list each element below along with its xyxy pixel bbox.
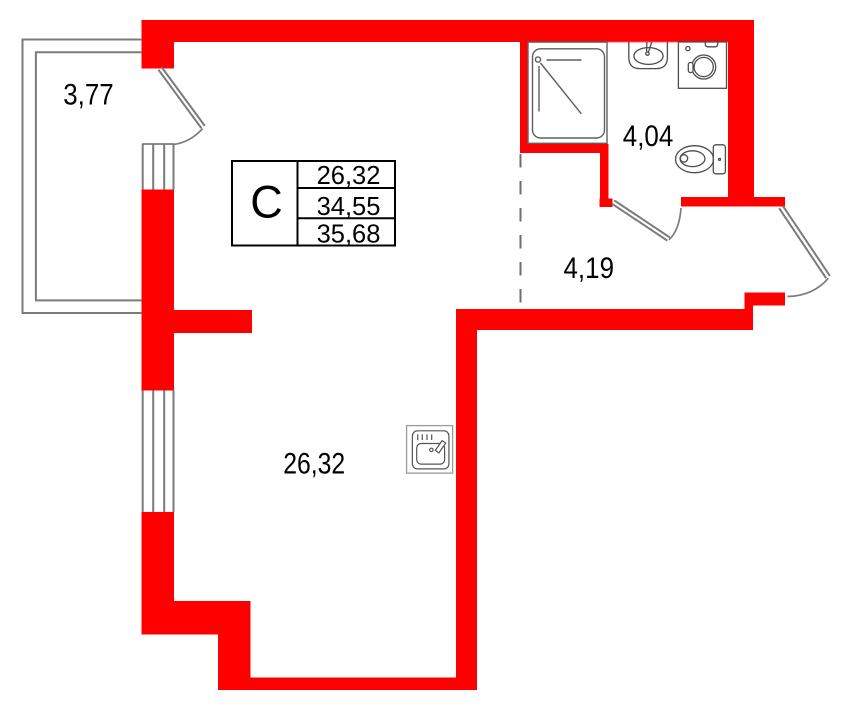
svg-text:4,04: 4,04	[623, 120, 674, 153]
svg-text:26,32: 26,32	[317, 162, 381, 190]
svg-text:34,55: 34,55	[317, 193, 381, 221]
svg-text:4,19: 4,19	[564, 252, 615, 285]
svg-text:3,77: 3,77	[63, 79, 113, 112]
svg-text:С: С	[250, 177, 283, 228]
svg-text:26,32: 26,32	[283, 448, 345, 481]
svg-text:35,68: 35,68	[317, 221, 381, 249]
